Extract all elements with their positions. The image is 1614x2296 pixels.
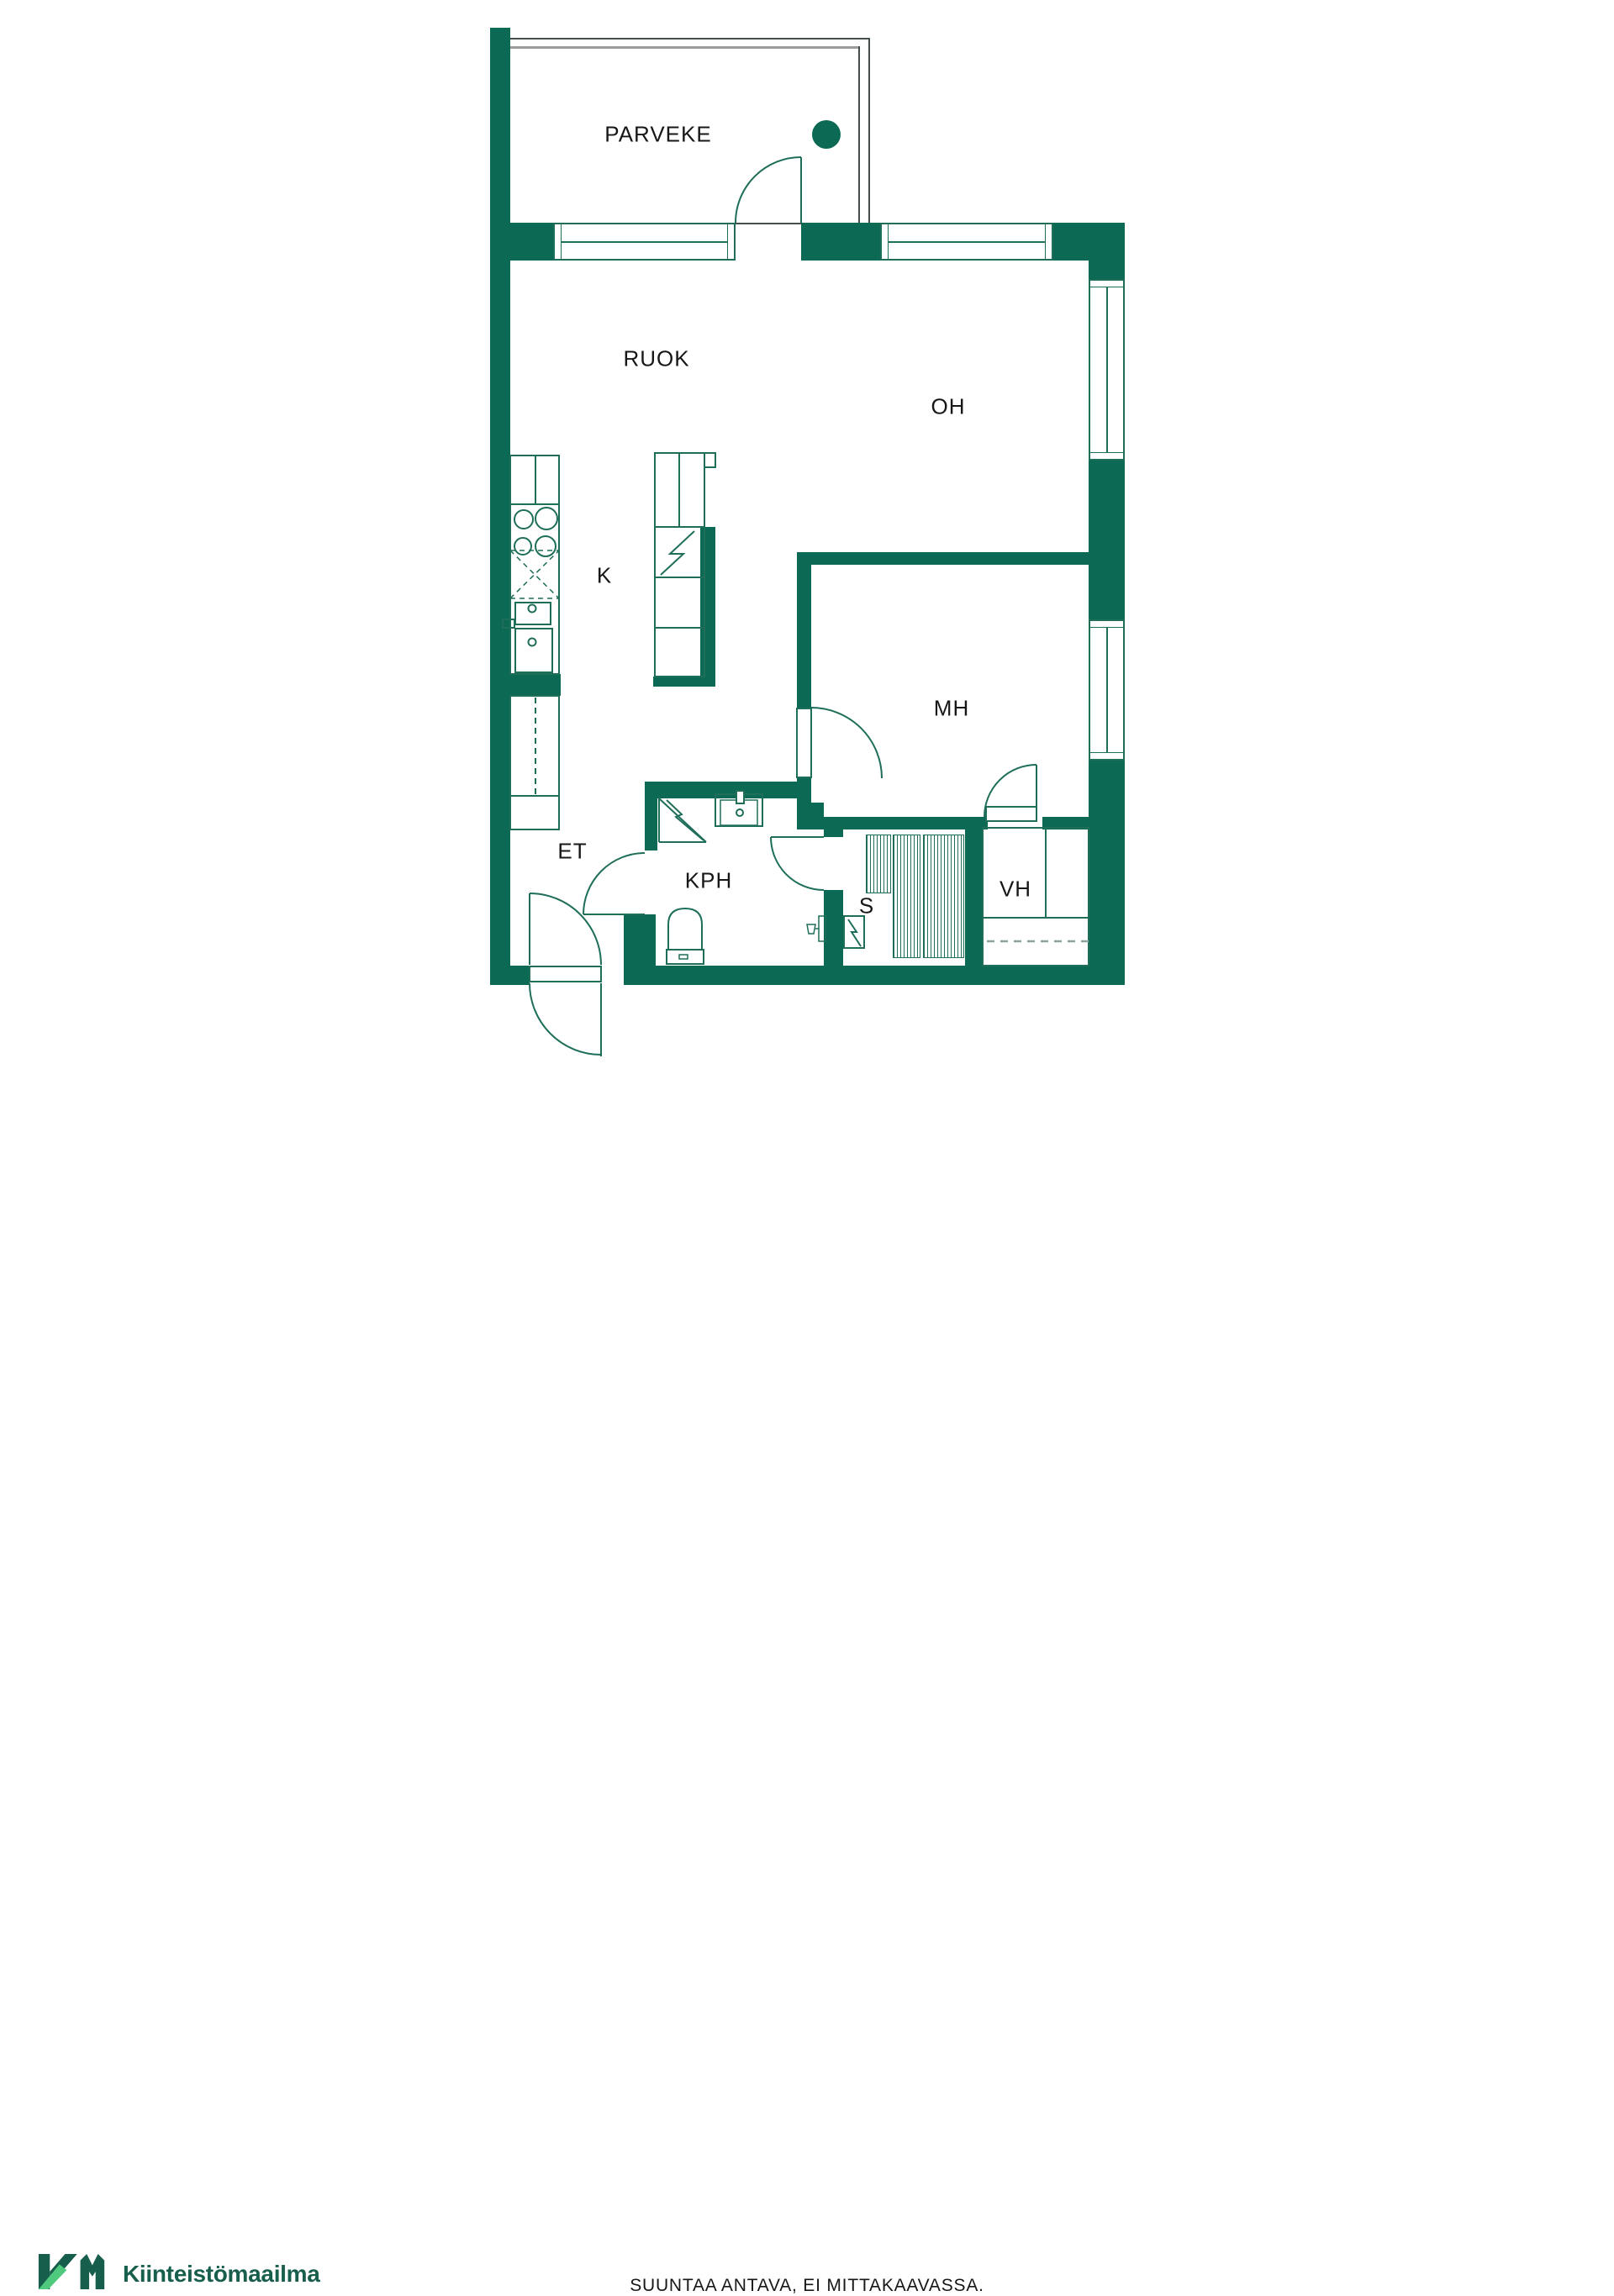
south-wall-left [490, 966, 530, 985]
balcony-column [812, 120, 841, 149]
window-cap [1045, 224, 1046, 259]
window-cap [1090, 452, 1123, 453]
window-oh-east [1089, 279, 1125, 461]
room-label-k: K [597, 563, 612, 589]
room-label-mh: MH [934, 696, 969, 722]
junction-stub [811, 803, 824, 819]
fridge-icon [661, 531, 694, 575]
sauna-east-wall [965, 829, 982, 966]
west-wall [490, 223, 510, 985]
mh-west-wall-upper [797, 565, 811, 708]
kph-south-stub [624, 914, 656, 985]
sauna-bench-mid [893, 835, 920, 958]
room-label-parveke: PARVEKE [604, 122, 711, 148]
balcony-inner-rail [510, 46, 860, 49]
island-south-bar [653, 677, 715, 687]
room-label-kph: KPH [685, 868, 732, 894]
balcony-inner-rail-right [858, 46, 860, 224]
brand-name: Kiinteistömaailma [123, 2261, 320, 2288]
window-mullion [562, 241, 727, 243]
window-ruok [553, 223, 736, 261]
room-label-oh: OH [931, 394, 966, 420]
room-label-s: S [859, 893, 874, 919]
floor-plan: PARVEKE RUOK OH K MH ET KPH S VH [0, 0, 1614, 1210]
kph-west-wall [645, 798, 657, 850]
mh-south-wall [797, 817, 988, 829]
footer: Kiinteistömaailma SUUNTAA ANTAVA, EI MIT… [0, 1118, 1614, 1210]
vh-north-wall-east [1042, 817, 1089, 829]
room-label-vh: VH [1000, 877, 1031, 903]
disclaimer-text: SUUNTAA ANTAVA, EI MITTAKAAVASSA. [630, 2276, 984, 2296]
south-wall-right [624, 966, 1125, 985]
logo-m [81, 2254, 105, 2289]
kitchen-stub-wall [510, 674, 561, 696]
kitchen-counter [503, 456, 559, 674]
balcony-west-wall [490, 28, 510, 224]
east-wall-top [1089, 223, 1125, 279]
front-door [530, 893, 601, 1056]
toilet [667, 908, 704, 964]
window-cap [1090, 287, 1123, 287]
sauna-bench-small [866, 835, 891, 893]
sauna-door [771, 837, 824, 890]
east-wall-mid [1089, 461, 1125, 619]
oh-mh-wall [797, 552, 1089, 565]
dishwasher-reservation [510, 550, 559, 598]
island-east-strip [700, 527, 715, 687]
kph-north-wall [645, 782, 797, 798]
sauna-west-wall-lower [824, 890, 843, 966]
window-mullion [1106, 287, 1108, 452]
room-label-ruok: RUOK [623, 346, 689, 372]
window-mh-east [1089, 619, 1125, 761]
room-label-et: ET [557, 839, 587, 865]
window-mullion [1106, 628, 1108, 752]
mh-west-wall-lower [797, 777, 811, 817]
mh-door [797, 708, 882, 778]
shower-head-icon [807, 916, 825, 941]
hall-wardrobe [510, 696, 559, 829]
window-cap [1090, 752, 1123, 753]
kph-door [583, 853, 645, 914]
window-oh-north [880, 223, 1053, 261]
sauna-bench-large [923, 835, 964, 958]
window-cap [561, 224, 562, 259]
km-logo-mark [37, 2254, 108, 2289]
sauna-west-wall-upper [824, 829, 843, 837]
vh-closet [983, 828, 1089, 966]
window-cap [1090, 627, 1123, 628]
east-wall-bottom [1089, 761, 1125, 985]
shower [659, 798, 706, 842]
window-cap [888, 224, 889, 259]
vh-door [984, 765, 1036, 821]
window-mullion [889, 241, 1045, 243]
window-cap [727, 224, 728, 259]
sauna-heater [844, 916, 864, 948]
north-wall-mid [801, 223, 880, 261]
